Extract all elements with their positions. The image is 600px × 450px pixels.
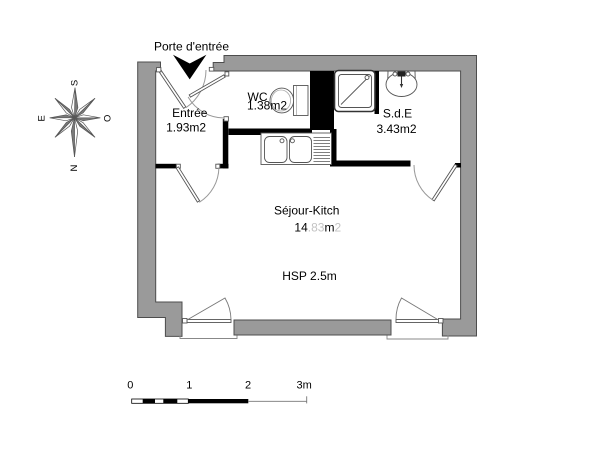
svg-text:E: E (37, 115, 48, 121)
svg-text:3m: 3m (297, 380, 312, 392)
svg-text:N: N (69, 164, 80, 171)
svg-text:Séjour-Kitch: Séjour-Kitch (274, 203, 339, 217)
svg-text:S.d.E: S.d.E (383, 107, 412, 121)
svg-text:HSP 2.5m: HSP 2.5m (282, 269, 336, 283)
svg-text:2: 2 (245, 380, 251, 392)
svg-text:Entrée: Entrée (172, 106, 208, 120)
svg-text:1: 1 (186, 380, 192, 392)
svg-text:S: S (70, 80, 81, 86)
svg-text:3.43m2: 3.43m2 (376, 122, 416, 136)
svg-text:1.38m2: 1.38m2 (247, 99, 287, 113)
svg-text:O: O (103, 115, 114, 122)
svg-text:14.83m2: 14.83m2 (294, 221, 341, 235)
svg-text:Porte d'entrée: Porte d'entrée (154, 39, 229, 53)
svg-text:1.93m2: 1.93m2 (166, 121, 206, 135)
svg-text:0: 0 (127, 380, 133, 392)
